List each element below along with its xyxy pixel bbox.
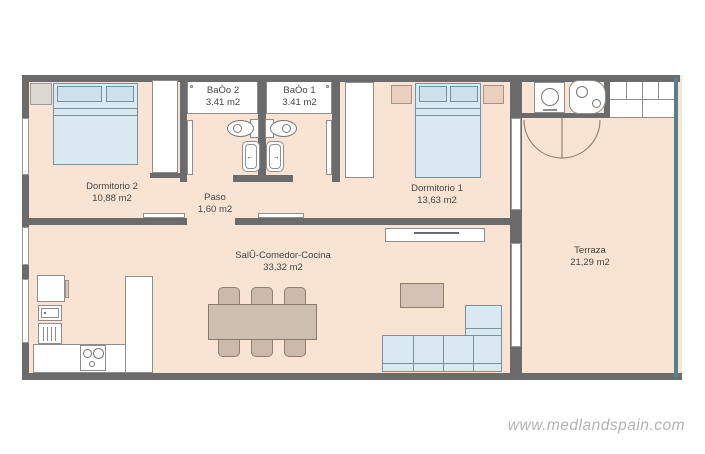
bed-fold-line <box>416 115 480 116</box>
drainer-line <box>43 327 44 341</box>
stairs-edge-line <box>610 117 674 118</box>
nightstand-dormitorio1-right <box>483 85 504 104</box>
bed-dormitorio1 <box>415 83 481 178</box>
water-heater-icon <box>569 80 606 114</box>
sofa-cushion-line <box>466 328 501 329</box>
water-heater-dial <box>576 86 588 98</box>
terraza-railing <box>674 77 678 377</box>
kitchen-drainer <box>38 323 62 344</box>
sofa-cushion-line <box>413 336 414 371</box>
tv-icon <box>414 232 459 234</box>
nightstand-dormitorio1-left <box>391 85 412 104</box>
dining-table <box>208 304 317 340</box>
washing-machine-icon <box>534 82 565 113</box>
sofa-base <box>382 335 502 372</box>
bed-fold-line <box>54 115 137 116</box>
wall-jamb-bano2 <box>180 175 187 182</box>
wall-interior-right <box>235 218 510 225</box>
stairs <box>610 82 674 117</box>
room-area: 3.41 m2 <box>188 97 258 109</box>
door-leaf-bano2 <box>187 120 193 175</box>
washing-machine-detail <box>543 109 557 111</box>
wall-jamb-bano1 <box>332 175 340 182</box>
room-name: SalÛ-Comedor-Cocina <box>203 250 363 262</box>
room-label-dormitorio2: Dormitorio 2 10,88 m2 <box>50 181 174 204</box>
pillow <box>57 86 102 102</box>
window-salon-terraza <box>511 243 521 347</box>
toilet-bowl-bano1 <box>282 124 291 133</box>
wall-bano1-right <box>332 82 340 175</box>
room-area: 21,29 m2 <box>528 257 652 269</box>
hob-burner <box>93 348 104 359</box>
kitchen-sink <box>38 305 62 321</box>
coffee-table <box>400 283 444 308</box>
room-label-terraza: Terraza 21,29 m2 <box>528 245 652 268</box>
pillow <box>419 86 447 102</box>
tv-unit <box>385 228 485 242</box>
bed-fold-line <box>416 108 480 109</box>
room-area: 13,63 m2 <box>375 195 499 207</box>
watermark: www.medlandspain.com <box>508 417 685 435</box>
wardrobe-dormitorio2 <box>152 80 178 173</box>
room-label-paso: Paso 1,60 m2 <box>175 192 255 215</box>
sofa-cushion-line <box>443 336 444 371</box>
room-area: 33,32 m2 <box>203 262 363 274</box>
wall-bano2-left <box>180 82 187 175</box>
basin-arrow-bano1: → <box>272 153 280 161</box>
hob-burner <box>89 361 95 367</box>
stair-line <box>642 99 643 117</box>
toilet-bowl-bano2 <box>233 124 242 133</box>
room-area: 3.41 m2 <box>267 97 332 109</box>
room-label-bano2: BaÒo 2 3.41 m2 <box>188 85 258 108</box>
room-label-salon: SalÛ-Comedor-Cocina 33,32 m2 <box>203 250 363 273</box>
room-name: BaÒo 2 <box>188 85 258 97</box>
room-label-bano1: BaÒo 1 3.41 m2 <box>267 85 332 108</box>
room-name: Dormitorio 1 <box>375 183 499 195</box>
kitchen-counter-top <box>37 275 65 302</box>
drainer-line <box>47 327 48 341</box>
terraza-door-arcs <box>520 118 604 160</box>
washing-machine-drum <box>541 88 559 106</box>
kitchen-counter-handle <box>65 280 69 298</box>
window-kitchen-1 <box>22 227 29 265</box>
stair-line <box>626 82 627 99</box>
bed-fold-line <box>54 108 137 109</box>
wall-interior-left <box>22 218 187 225</box>
wall-bano-bottom <box>233 175 293 182</box>
wardrobe-dormitorio1 <box>345 82 374 178</box>
floorplan-canvas: ← → <box>22 75 682 380</box>
room-area: 10,88 m2 <box>50 193 174 205</box>
bed-dormitorio2 <box>53 83 138 165</box>
kitchen-hob <box>80 345 106 371</box>
water-heater-dial <box>592 99 601 108</box>
sofa-cushion-line <box>473 336 474 371</box>
room-name: Dormitorio 2 <box>50 181 174 193</box>
floorplan-page: { "watermark": "www.medlandspain.com", "… <box>0 0 705 454</box>
room-label-dormitorio1: Dormitorio 1 13,63 m2 <box>375 183 499 206</box>
room-name: Paso <box>175 192 255 204</box>
nightstand-dormitorio2 <box>30 83 52 105</box>
stair-line <box>658 82 659 99</box>
room-name: Terraza <box>528 245 652 257</box>
outer-wall-bottom <box>22 373 682 380</box>
wardrobe-dormitorio2-base <box>150 173 180 178</box>
door-leaf-bano1 <box>326 120 332 175</box>
drainer-line <box>55 327 56 341</box>
pillow <box>106 86 134 102</box>
basin-arrow-bano2: ← <box>246 153 254 161</box>
window-dormitorio2 <box>22 118 29 175</box>
stair-line <box>642 82 643 99</box>
room-area: 1,60 m2 <box>175 204 255 216</box>
pillow <box>450 86 478 102</box>
kitchen-tall-unit <box>125 276 153 373</box>
kitchen-sink-drain <box>44 312 46 314</box>
window-kitchen-2 <box>22 279 29 343</box>
sofa-back-line <box>383 363 501 364</box>
hob-burner <box>83 349 92 358</box>
room-name: BaÒo 1 <box>267 85 332 97</box>
sliding-door-dormitorio1 <box>258 213 304 218</box>
drainer-line <box>51 327 52 341</box>
